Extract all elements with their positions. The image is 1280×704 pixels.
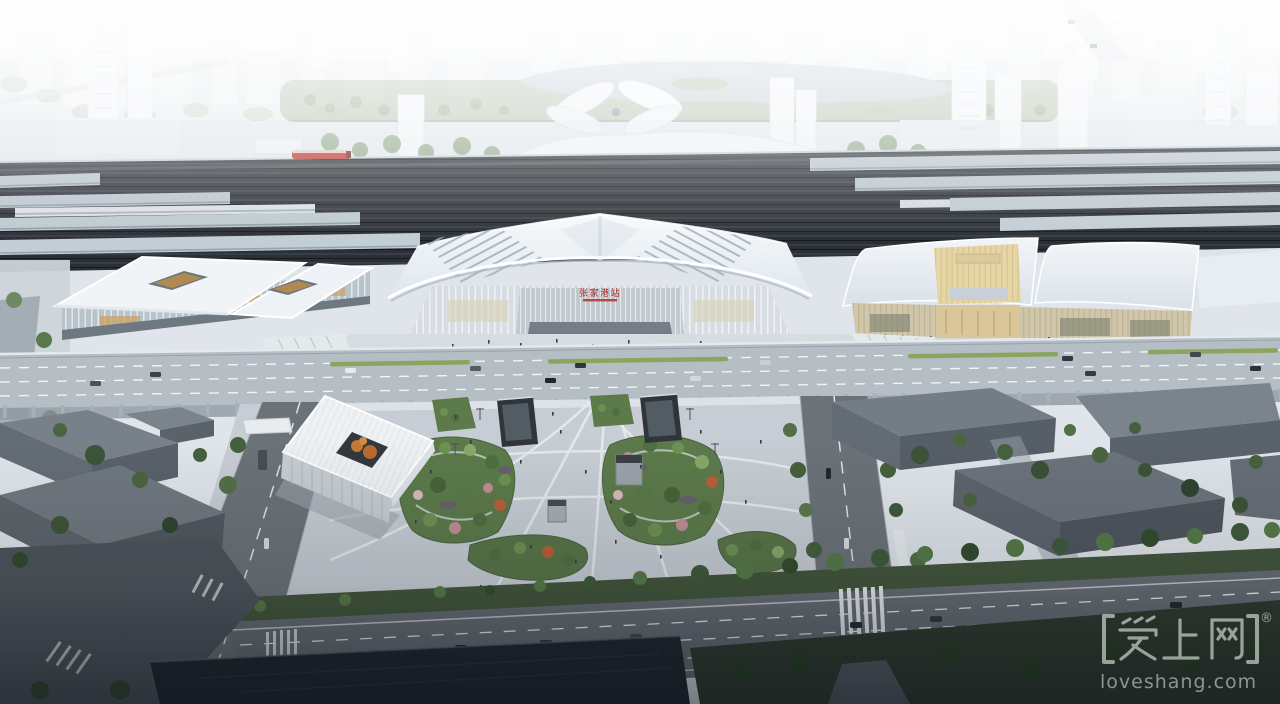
aerial-rendering-station-complex: 张家港站 [0,0,1280,704]
watermark-brand-text: 爱上网 [1133,623,1223,658]
haze-top [0,0,1280,120]
station-facade: 张家港站 [410,286,790,334]
far-right-canopy [1195,250,1280,308]
station-sign: 张家港站 [579,287,621,299]
terminal-roof-right-wing [1035,243,1199,310]
metro-entrance-east [640,394,682,443]
station-sign-subline [583,299,617,301]
registered-mark-icon: ® [1260,611,1273,626]
vignette [0,440,1280,704]
scene-canvas: 张家港站 [0,0,1280,704]
watermark-domain: loveshang.com [1100,671,1257,693]
metro-entrance-west [497,397,538,447]
